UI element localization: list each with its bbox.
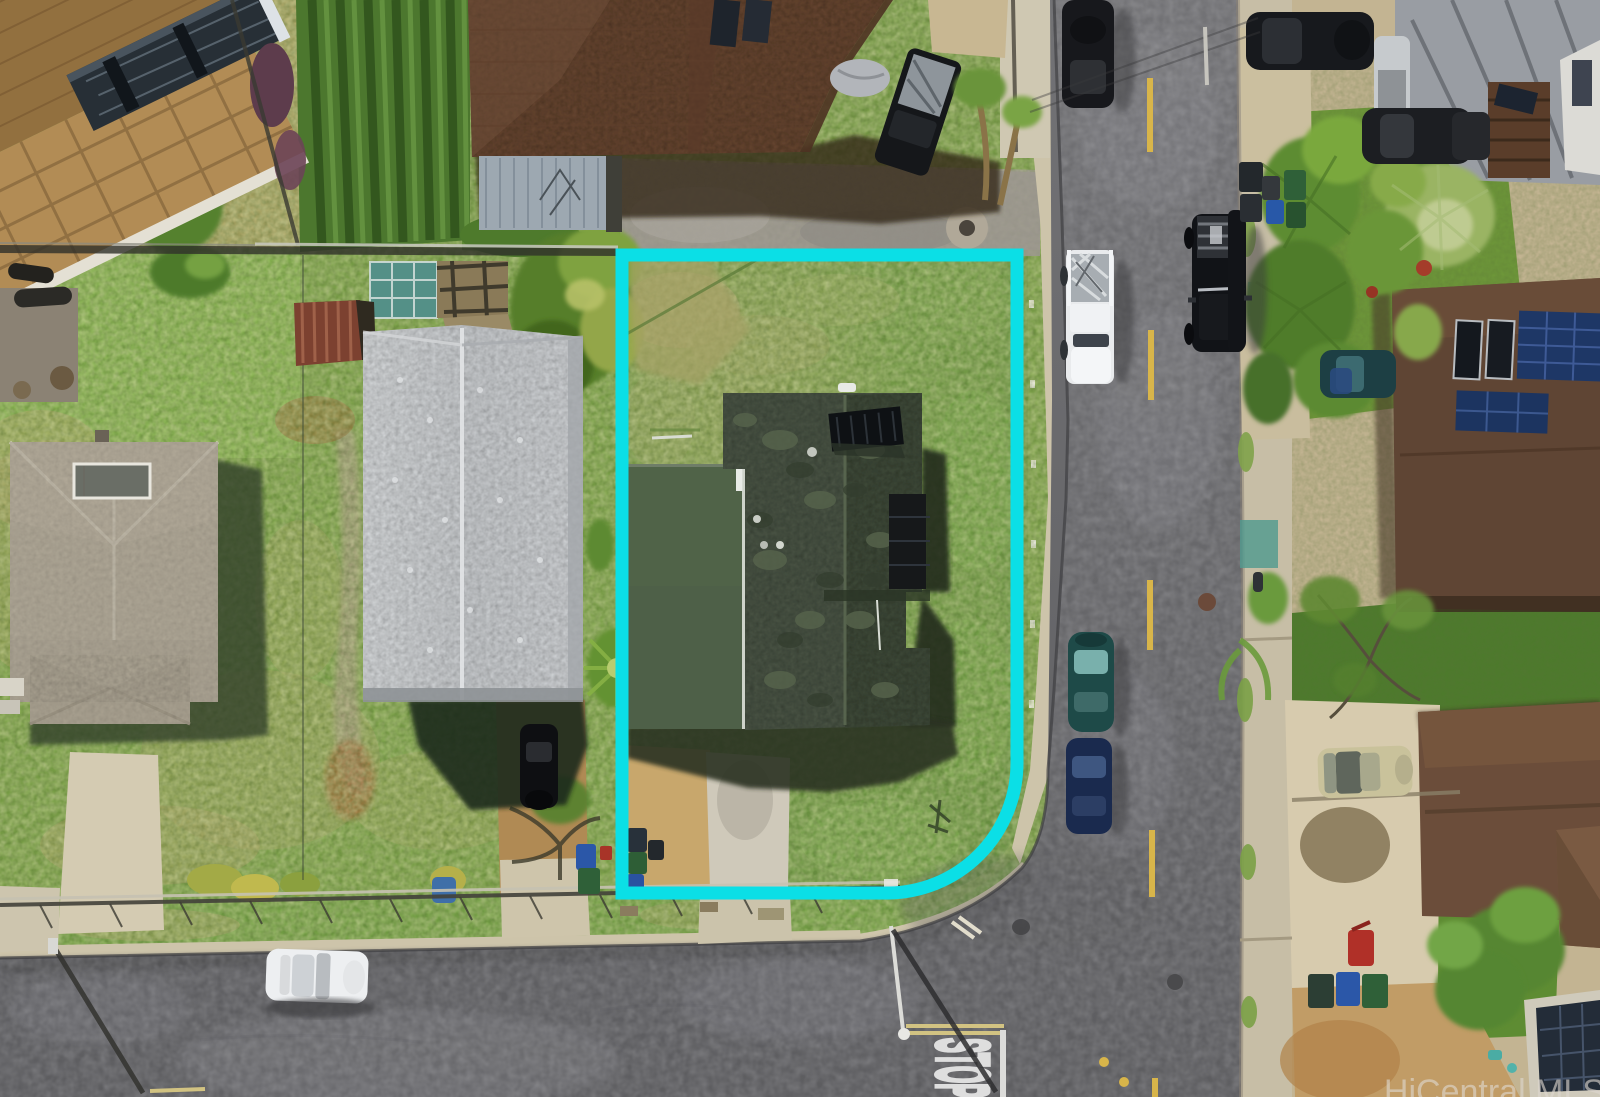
svg-text:HiCentral MLS: HiCentral MLS bbox=[1384, 1073, 1600, 1097]
